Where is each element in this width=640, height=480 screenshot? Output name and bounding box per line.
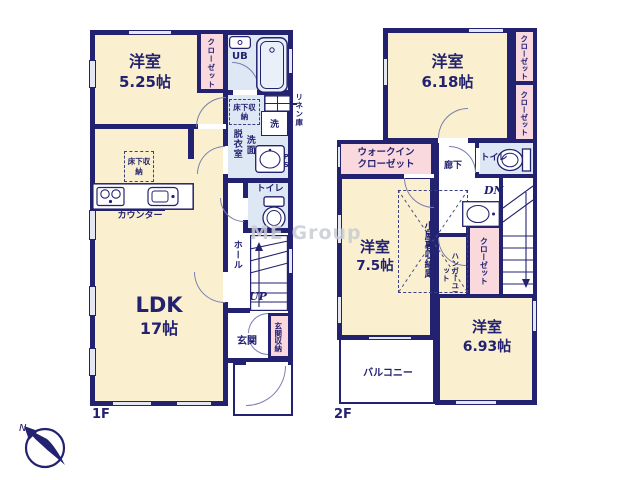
washer-box: 洗 [261,111,288,136]
window-mark [455,400,497,405]
window-mark [337,296,342,324]
vanity-label: 洗面 [243,132,255,158]
hanger-unit-label: ハンガーユニット [441,251,460,297]
closet-2f-top-label: クローゼット [519,33,529,81]
floor-2f-label: 2F [334,407,352,424]
linen-cabinet-icon [264,95,291,112]
window-mark [112,401,152,406]
washer-label: 洗 [270,117,279,130]
attic-storage-label: 小屋裏収納庫 [421,207,433,291]
toilet-1f-label: トイレ [252,184,288,196]
room-525-label: 洋室 5.25帖 [90,52,200,92]
bathtub-icon [256,37,288,93]
kitchen-counter-icon [92,183,194,210]
door-gap [438,138,468,143]
sink-small-icon [229,36,251,49]
counter-label: カウンター [108,211,172,223]
room-ldk-label: LDK 17帖 [90,292,228,340]
ps-label: PS [281,149,290,173]
underfloor-storage-label: 床下収納 [230,103,259,122]
dressing-room-label: 脱衣室 [230,127,242,161]
window-mark [89,210,96,240]
closet-2f-stairs-label: クローゼット [478,231,488,291]
hall-label: ホール [230,238,242,272]
entrance-storage-label: 玄関収納 [273,317,283,357]
floorplan-canvas: 洗 床下収納 [0,0,640,480]
entrance-label: 玄関 [229,335,265,348]
window-mark [288,248,293,274]
closet-1f-label: クローゼット [206,36,216,90]
window-mark [128,30,172,35]
underfloor-storage-label: 床下収納 [125,157,153,176]
hallway-label: 廊下 [438,161,468,173]
window-mark [288,48,293,74]
watermark: ME Group [250,222,362,244]
walk-in-closet-label: ウォークインクローゼット [355,147,417,171]
window-mark [176,401,212,406]
window-mark [368,336,412,340]
wall-kitchen-stub [188,129,194,159]
window-mark [468,28,504,33]
compass-icon: N [16,418,74,476]
ub-label: UB [232,50,248,63]
room-618-label: 洋室 6.18帖 [385,52,510,92]
up-label: UP [249,290,267,304]
underfloor-storage-washroom: 床下収納 [229,99,260,125]
room-693-label: 洋室 6.93帖 [437,318,537,356]
window-mark [89,348,96,376]
dn-label: DN [484,184,504,198]
compass-north-label: N [19,423,27,434]
balcony-label: バルコニー [352,367,424,380]
floor-1f-label: 1F [92,407,110,424]
toilet-2f-label: トイレ [479,153,509,165]
stairs-down-icon [503,178,533,294]
door-gap [233,90,257,95]
underfloor-storage-ldk: 床下収納 [124,151,154,182]
closet-2f-mid-label: クローゼット [519,88,529,138]
washbasin-icon [462,201,500,227]
window-mark [337,146,341,168]
linen-label: リネン庫 [294,86,304,134]
